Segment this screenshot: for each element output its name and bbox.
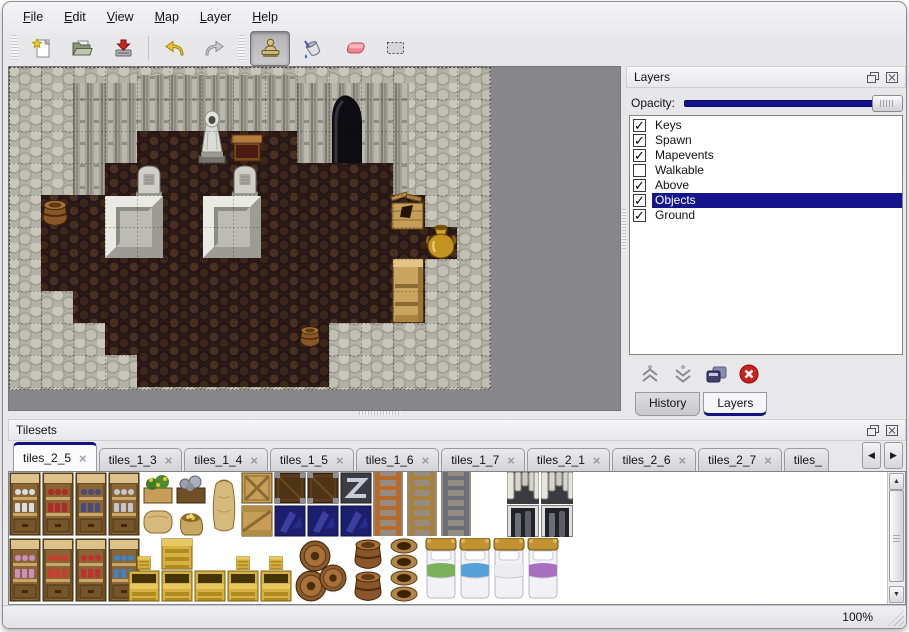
zoom-level: 100%	[842, 610, 873, 624]
tileset-tab-label: tiles_2_6	[622, 453, 670, 467]
tileset-tab[interactable]: tiles_1_7×	[441, 448, 525, 471]
opacity-slider[interactable]	[684, 95, 903, 111]
layer-label: Spawn	[652, 133, 902, 148]
float-panel-button[interactable]	[865, 423, 881, 438]
layers-panel-titlebar: Layers	[626, 66, 906, 88]
layers-panel: Layers Opacity: ✓ Keys ✓ Spawn	[626, 66, 906, 412]
toolbar-separator	[148, 36, 149, 60]
new-file-icon	[31, 38, 52, 58]
tab-close-icon[interactable]: ×	[336, 454, 344, 467]
tileset-tab[interactable]: tiles_1_4×	[184, 448, 268, 471]
tab-close-icon[interactable]: ×	[679, 454, 687, 467]
tab-close-icon[interactable]: ×	[764, 454, 772, 467]
tileset-tab-label: tiles_2_5	[23, 451, 71, 465]
layers-panel-title: Layers	[634, 70, 862, 84]
delete-icon	[738, 364, 760, 384]
scroll-up-button[interactable]: ▲	[889, 473, 904, 490]
open-icon	[71, 38, 93, 58]
tileset-view[interactable]	[9, 472, 877, 604]
layer-checkbox[interactable]: ✓	[633, 164, 646, 177]
tab-history[interactable]: History	[635, 392, 700, 416]
tab-close-icon[interactable]: ×	[79, 452, 87, 465]
delete-layer-button[interactable]	[737, 363, 761, 385]
layer-label: Objects	[652, 193, 902, 208]
tileset-tab-label: tiles_1_5	[280, 453, 328, 467]
duplicate-layer-button[interactable]	[704, 363, 728, 385]
tileset-tab-label: tiles_1_4	[194, 453, 242, 467]
layer-checkbox[interactable]: ✓	[633, 149, 646, 162]
tilesets-panel-title: Tilesets	[16, 423, 862, 437]
undo-icon	[164, 39, 184, 58]
tileset-tab-label: tiles_2_1	[537, 453, 585, 467]
layer-checkbox[interactable]: ✓	[633, 209, 646, 222]
tileset-tab[interactable]: tiles_1_5×	[270, 448, 354, 471]
scroll-tabs-right-button[interactable]: ▶	[884, 442, 903, 469]
opacity-slider-thumb[interactable]	[872, 95, 903, 112]
resize-grip[interactable]	[888, 610, 904, 626]
tileset-tab[interactable]: tiles_1_3×	[99, 448, 183, 471]
layer-row[interactable]: ✓ Mapevents	[630, 148, 902, 163]
menu-layer[interactable]: Layer	[192, 7, 239, 27]
new-file-button[interactable]	[23, 32, 59, 64]
save-button[interactable]	[105, 32, 141, 64]
tileset-tab[interactable]: tiles_2_7×	[698, 448, 782, 471]
tileset-scrollbar[interactable]: ▲ ▼	[887, 472, 905, 604]
layer-label: Mapevents	[652, 148, 902, 163]
app-window: File Edit View Map Layer Help	[2, 1, 907, 629]
layer-row[interactable]: ✓ Ground	[630, 208, 902, 223]
tilesets-panel: Tilesets tiles_2_5× tiles_1_3× tiles_1_4…	[8, 419, 906, 606]
eraser-tool-icon	[343, 39, 366, 58]
toolbar	[9, 30, 413, 66]
menu-view[interactable]: View	[99, 7, 142, 27]
redo-icon	[205, 39, 225, 58]
opacity-row: Opacity:	[631, 95, 903, 111]
redo-button[interactable]	[197, 32, 233, 64]
tileset-tabs: tiles_2_5× tiles_1_3× tiles_1_4× tiles_1…	[8, 442, 906, 471]
tileset-tab-label: tiles_1_3	[109, 453, 157, 467]
toolbar-drag-handle[interactable]	[11, 35, 18, 61]
layer-label: Ground	[652, 208, 902, 223]
opacity-slider-track	[684, 100, 901, 107]
open-button[interactable]	[64, 32, 100, 64]
layer-row[interactable]: ✓ Keys	[630, 118, 902, 133]
dock-tabs: History Layers	[626, 392, 906, 416]
tileset-tab-label: tiles_1_7	[451, 453, 499, 467]
layer-checkbox[interactable]: ✓	[633, 119, 646, 132]
chevron-double-up-icon	[639, 365, 661, 384]
tab-scroll-buttons: ◀ ▶	[862, 442, 903, 469]
layer-row[interactable]: ✓ Walkable	[630, 163, 902, 178]
layer-row[interactable]: ✓ Above	[630, 178, 902, 193]
tab-close-icon[interactable]: ×	[250, 454, 258, 467]
tileset-tab-label: tiles_2_7	[708, 453, 756, 467]
save-icon	[113, 38, 134, 58]
eraser-tool-button[interactable]	[336, 32, 372, 64]
tab-close-icon[interactable]: ×	[165, 454, 173, 467]
tileset-tab[interactable]: tiles_1_6×	[356, 448, 440, 471]
tab-close-icon[interactable]: ×	[593, 454, 601, 467]
close-icon	[886, 425, 898, 436]
menu-help[interactable]: Help	[244, 7, 286, 27]
menu-file[interactable]: File	[15, 7, 51, 27]
tilesets-panel-titlebar: Tilesets	[8, 419, 906, 441]
tab-close-icon[interactable]: ×	[507, 454, 515, 467]
layer-checkbox[interactable]: ✓	[633, 194, 646, 207]
tab-layers[interactable]: Layers	[703, 392, 767, 416]
stamp-tool-icon	[260, 38, 281, 58]
duplicate-icon	[704, 365, 728, 384]
chevron-double-down-icon	[672, 365, 694, 384]
scroll-tabs-left-button[interactable]: ◀	[862, 442, 881, 469]
scroll-down-button[interactable]: ▼	[889, 586, 904, 603]
layer-label: Walkable	[652, 163, 902, 178]
select-tool-button[interactable]	[377, 32, 413, 64]
horizontal-splitter-handle[interactable]	[359, 411, 401, 415]
toolbar-drag-handle[interactable]	[238, 35, 245, 61]
layer-list: ✓ Keys ✓ Spawn ✓ Mapevents ✓ Walkable ✓ …	[629, 115, 903, 355]
fill-tool-icon	[302, 38, 324, 59]
tab-close-icon[interactable]: ×	[422, 454, 430, 467]
float-icon	[867, 425, 879, 436]
close-panel-button[interactable]	[884, 423, 900, 438]
menu-bar: File Edit View Map Layer Help	[9, 5, 900, 29]
fill-tool-button[interactable]	[295, 32, 331, 64]
layer-row[interactable]: ✓ Spawn	[630, 133, 902, 148]
layer-label: Keys	[652, 118, 902, 133]
opacity-label: Opacity:	[631, 96, 675, 110]
float-panel-button[interactable]	[865, 70, 881, 85]
undo-button[interactable]	[156, 32, 192, 64]
select-tool-icon	[385, 39, 406, 57]
screen: File Edit View Map Layer Help	[0, 0, 909, 632]
menu-map[interactable]: Map	[147, 7, 187, 27]
float-icon	[867, 72, 879, 83]
move-layer-up-button[interactable]	[638, 363, 662, 385]
layer-checkbox[interactable]: ✓	[633, 179, 646, 192]
map-view	[9, 67, 491, 390]
tileset-tab[interactable]: tiles_	[784, 448, 829, 471]
tileset-tab[interactable]: tiles_2_6×	[612, 448, 696, 471]
menu-edit[interactable]: Edit	[56, 7, 94, 27]
layer-buttons	[626, 355, 906, 387]
tileset-tab[interactable]: tiles_2_5×	[13, 442, 97, 471]
layer-label: Above	[652, 178, 902, 193]
layer-checkbox[interactable]: ✓	[633, 134, 646, 147]
tileset-tab-label: tiles_1_6	[366, 453, 414, 467]
stamp-tool-button[interactable]	[250, 31, 290, 66]
map-canvas[interactable]	[8, 66, 621, 411]
move-layer-down-button[interactable]	[671, 363, 695, 385]
tileset-tab-label: tiles_	[794, 453, 822, 467]
close-icon	[886, 72, 898, 83]
tileset-content: ▲ ▼	[8, 471, 906, 605]
layer-row[interactable]: ✓ Objects	[630, 193, 902, 208]
tileset-tab[interactable]: tiles_2_1×	[527, 448, 611, 471]
status-bar: 100%	[3, 605, 906, 628]
close-panel-button[interactable]	[884, 70, 900, 85]
scrollbar-thumb[interactable]	[889, 490, 904, 582]
